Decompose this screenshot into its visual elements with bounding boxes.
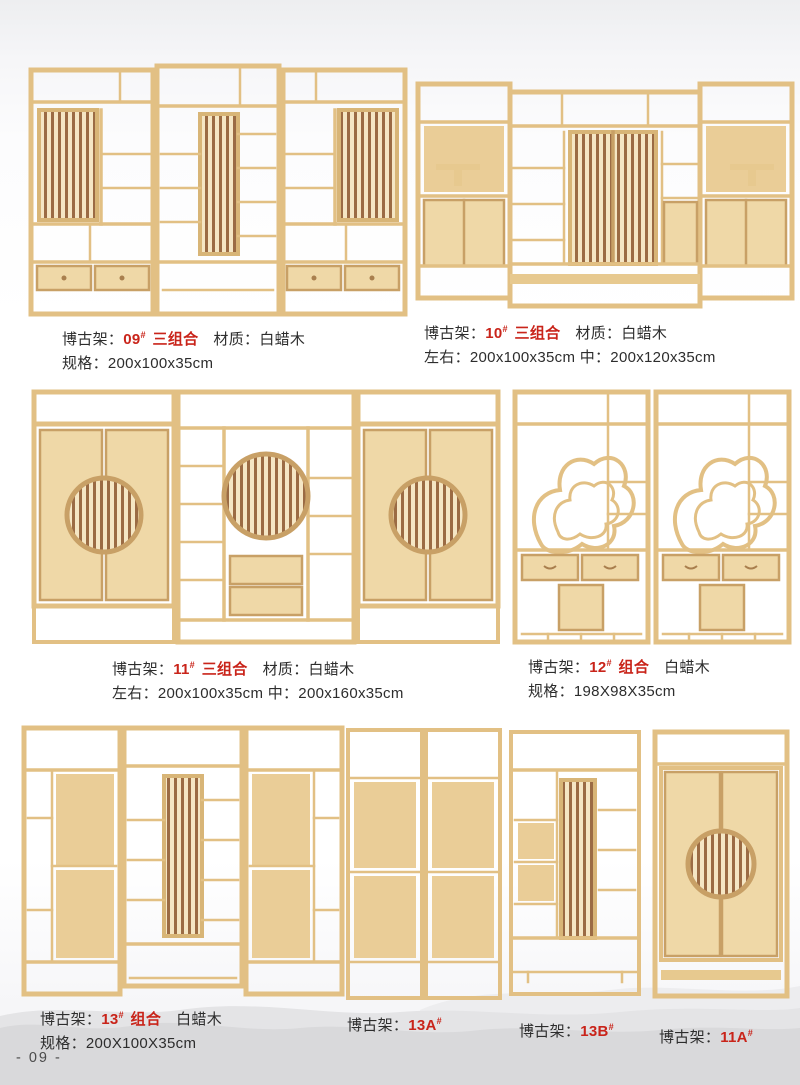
product-caption-13b: 博古架：13B#	[519, 1016, 614, 1043]
caption-suffix: 组合	[619, 659, 650, 676]
caption-line1: 博古架：09#三组合材质：白蜡木	[62, 324, 305, 351]
product-13b	[504, 726, 646, 1004]
caption-line1: 博古架：10#三组合材质：白蜡木	[424, 318, 716, 345]
caption-code: 13#组合	[101, 1011, 161, 1028]
product-image-09	[28, 62, 412, 320]
caption-line1: 博古架：11#三组合材质：白蜡木	[112, 654, 404, 681]
caption-material: 白蜡木	[176, 1011, 222, 1028]
caption-code: 11A#	[720, 1029, 753, 1046]
product-12	[508, 386, 796, 652]
product-image-13a	[342, 724, 506, 1006]
product-caption-12: 博古架：12#组合白蜡木 规格：198X98X35cm	[528, 652, 710, 703]
caption-suffix: 三组合	[515, 325, 561, 342]
caption-code: 13B#	[580, 1023, 613, 1040]
caption-line1: 博古架：13B#	[519, 1016, 614, 1043]
product-13	[18, 720, 348, 1006]
product-caption-10: 博古架：10#三组合材质：白蜡木 左右：200x100x35cm 中：200x1…	[424, 318, 716, 369]
caption-prefix: 博古架：	[112, 661, 173, 678]
caption-suffix: 三组合	[153, 331, 199, 348]
product-10	[412, 68, 798, 320]
caption-prefix: 博古架：	[62, 331, 123, 348]
caption-line1: 博古架：12#组合白蜡木	[528, 652, 710, 679]
caption-suffix: 组合	[131, 1011, 162, 1028]
caption-material: 材质：白蜡木	[263, 661, 355, 678]
product-caption-09: 博古架：09#三组合材质：白蜡木 规格：200x100x35cm	[62, 324, 305, 375]
caption-suffix: 三组合	[202, 661, 248, 678]
product-caption-11a: 博古架：11A#	[659, 1022, 753, 1049]
product-caption-13: 博古架：13#组合白蜡木 规格：200X100X35cm	[40, 1004, 222, 1055]
caption-material: 白蜡木	[664, 659, 710, 676]
caption-line1: 博古架：13A#	[347, 1010, 442, 1037]
caption-spec: 规格：198X98X35cm	[528, 680, 710, 703]
caption-line1: 博古架：11A#	[659, 1022, 753, 1049]
product-11a	[646, 726, 796, 1006]
product-image-11	[28, 382, 504, 650]
caption-prefix: 博古架：	[659, 1029, 720, 1046]
product-caption-13a: 博古架：13A#	[347, 1010, 442, 1037]
product-13a	[342, 724, 506, 1006]
caption-spec: 左右：200x100x35cm 中：200x160x35cm	[112, 682, 404, 705]
page-number: - 09 -	[16, 1050, 62, 1066]
catalog-page: 博古架：09#三组合材质：白蜡木 规格：200x100x35cm 博古架：10#…	[0, 0, 800, 1085]
caption-code: 13A#	[408, 1017, 441, 1034]
caption-prefix: 博古架：	[40, 1011, 101, 1028]
caption-code: 11#三组合	[173, 661, 247, 678]
caption-material: 材质：白蜡木	[213, 331, 305, 348]
product-11	[28, 382, 504, 650]
caption-code: 10#三组合	[485, 325, 560, 342]
caption-code: 09#三组合	[123, 331, 198, 348]
caption-prefix: 博古架：	[424, 325, 485, 342]
product-image-10	[412, 68, 798, 320]
product-image-11a	[646, 726, 796, 1006]
caption-spec: 规格：200x100x35cm	[62, 352, 305, 375]
caption-prefix: 博古架：	[347, 1017, 408, 1034]
caption-prefix: 博古架：	[519, 1023, 580, 1040]
caption-code: 12#组合	[589, 659, 649, 676]
product-image-12	[508, 386, 796, 652]
caption-spec: 左右：200x100x35cm 中：200x120x35cm	[424, 346, 716, 369]
product-image-13	[18, 720, 348, 1006]
product-09	[28, 62, 412, 320]
product-image-13b	[504, 726, 646, 1004]
product-caption-11: 博古架：11#三组合材质：白蜡木 左右：200x100x35cm 中：200x1…	[112, 654, 404, 705]
caption-prefix: 博古架：	[528, 659, 589, 676]
caption-line1: 博古架：13#组合白蜡木	[40, 1004, 222, 1031]
caption-spec: 规格：200X100X35cm	[40, 1032, 222, 1055]
caption-material: 材质：白蜡木	[575, 325, 667, 342]
